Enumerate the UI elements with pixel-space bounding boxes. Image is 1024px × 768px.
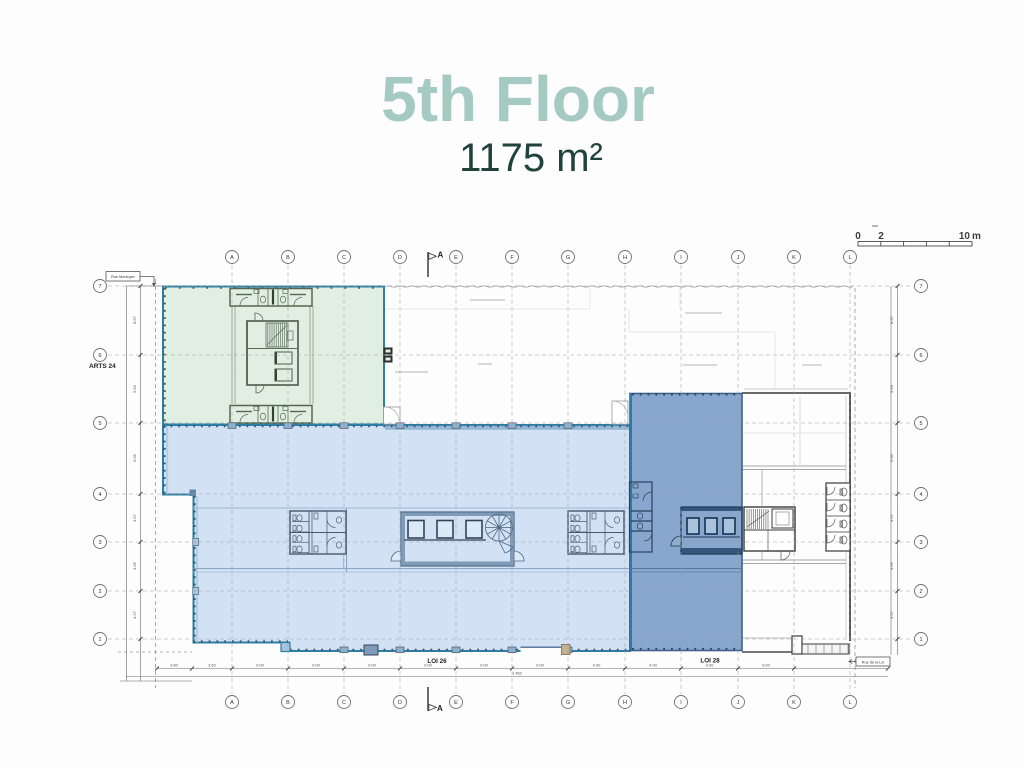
svg-text:9.60: 9.60 [132,384,137,393]
svg-text:9.00: 9.00 [368,663,377,668]
svg-text:10: 10 [959,231,971,242]
svg-text:D: D [398,255,402,261]
svg-text:C: C [342,255,346,261]
svg-text:H: H [623,255,627,261]
svg-text:4.57: 4.57 [132,513,137,522]
svg-text:5: 5 [98,421,101,427]
svg-text:7: 7 [98,284,101,290]
svg-text:3.60: 3.60 [208,663,217,668]
svg-text:1: 1 [919,637,922,643]
svg-text:B: B [286,700,290,706]
svg-text:9.00: 9.00 [762,663,771,668]
svg-text:2: 2 [98,589,101,595]
svg-text:L: L [848,700,851,706]
svg-text:J: J [737,700,740,706]
svg-text:6.05: 6.05 [132,453,137,462]
svg-text:A: A [230,255,234,261]
svg-text:9.60: 9.60 [889,384,894,393]
svg-text:C: C [342,700,346,706]
svg-text:4: 4 [919,492,922,498]
svg-text:9.00: 9.00 [536,663,545,668]
svg-text:1: 1 [98,637,101,643]
svg-text:A: A [437,704,443,713]
svg-text:m: m [972,231,981,242]
svg-text:9.00: 9.00 [256,663,265,668]
svg-text:A: A [438,251,444,260]
svg-text:8.97: 8.97 [889,315,894,324]
svg-text:3: 3 [919,540,922,546]
svg-text:G: G [566,700,570,706]
svg-text:9.00: 9.00 [649,663,658,668]
svg-text:A: A [230,700,234,706]
svg-text:LOI 28: LOI 28 [700,658,720,665]
svg-text:Rue Montoyer: Rue Montoyer [111,275,136,279]
svg-text:G: G [566,255,570,261]
svg-text:4.27: 4.27 [889,610,894,619]
svg-text:2: 2 [878,231,884,242]
svg-text:L: L [848,255,851,261]
svg-text:4: 4 [98,492,101,498]
svg-text:0: 0 [855,231,861,242]
svg-text:4.95: 4.95 [132,561,137,570]
svg-text:8.97: 8.97 [132,315,137,324]
svg-text:Rue de la Loi: Rue de la Loi [862,661,885,665]
svg-text:3.80: 3.80 [170,663,179,668]
svg-text:LOI 26: LOI 26 [427,658,447,665]
svg-text:6: 6 [919,353,922,359]
svg-text:9.00: 9.00 [593,663,602,668]
svg-text:7: 7 [919,284,922,290]
svg-text:D: D [398,700,402,706]
svg-text:4.27: 4.27 [132,610,137,619]
svg-text:4.95: 4.95 [889,561,894,570]
svg-text:B: B [286,255,290,261]
svg-text:1.462: 1.462 [512,671,523,676]
svg-text:4.57: 4.57 [889,513,894,522]
svg-text:K: K [792,700,796,706]
svg-text:2: 2 [919,589,922,595]
svg-text:9.00: 9.00 [312,663,321,668]
svg-text:5: 5 [919,421,922,427]
svg-text:ARTS 24: ARTS 24 [89,363,116,370]
svg-text:J: J [737,255,740,261]
svg-text:6: 6 [98,353,101,359]
svg-text:E: E [454,255,458,261]
svg-text:K: K [792,255,796,261]
svg-text:9.00: 9.00 [480,663,489,668]
svg-text:6.05: 6.05 [889,453,894,462]
svg-text:H: H [623,700,627,706]
svg-text:E: E [454,700,458,706]
svg-text:3: 3 [98,540,101,546]
